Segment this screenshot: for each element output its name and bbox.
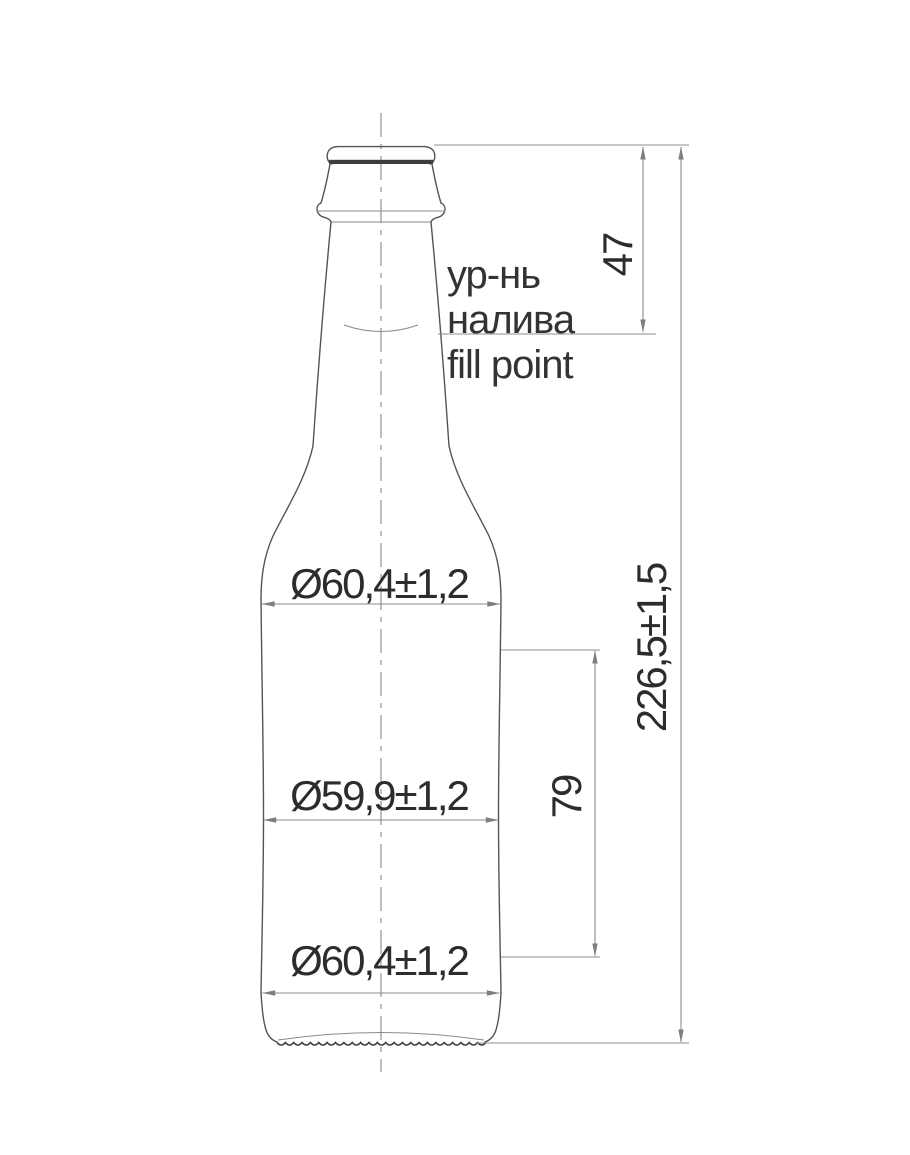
bottle-lip-band xyxy=(329,160,433,164)
bottle-technical-drawing: ур-нь налива fill point 47 226,5±1,5 79 … xyxy=(0,0,910,1155)
drawing-labels: ур-нь налива fill point 47 226,5±1,5 79 … xyxy=(290,233,675,984)
dimension-text-fill-depth: 47 xyxy=(594,233,641,276)
heel-right xyxy=(485,993,501,1042)
fill-point-label-ru-line1: ур-нь xyxy=(447,253,540,297)
arrowhead-down-icon xyxy=(592,944,597,957)
heel-left xyxy=(261,993,277,1042)
dimension-text-shoulder-diameter: Ø60,4±1,2 xyxy=(290,560,468,607)
fill-point-label-en: fill point xyxy=(447,343,574,387)
dimension-text-base-diameter: Ø60,4±1,2 xyxy=(290,937,468,984)
arrowhead-right-icon xyxy=(486,817,499,822)
arrowhead-down-icon xyxy=(640,320,645,333)
arrowhead-up-icon xyxy=(640,147,645,160)
body-right xyxy=(499,600,502,993)
crown-side-right xyxy=(432,164,441,203)
arrowhead-right-icon xyxy=(487,990,500,995)
fill-point-label-ru-line2: налива xyxy=(447,298,576,342)
neck-left xyxy=(313,222,331,446)
bead-left xyxy=(317,203,331,222)
dimension-text-waist-diameter: Ø59,9±1,2 xyxy=(290,772,468,819)
arrowhead-left-icon xyxy=(262,601,275,606)
arrowhead-up-icon xyxy=(592,651,597,664)
bead-right xyxy=(431,203,445,222)
dimension-text-panel-height: 79 xyxy=(543,775,590,818)
arrowhead-up-icon xyxy=(678,147,683,160)
arrowhead-down-icon xyxy=(678,1030,683,1043)
knurled-bottom-edge xyxy=(277,1043,486,1046)
crown-side-left xyxy=(321,164,330,203)
dimension-text-overall-height: 226,5±1,5 xyxy=(628,563,675,732)
arrowhead-left-icon xyxy=(263,817,276,822)
arrowhead-left-icon xyxy=(262,990,275,995)
arrowhead-right-icon xyxy=(487,601,500,606)
body-left xyxy=(261,600,264,993)
